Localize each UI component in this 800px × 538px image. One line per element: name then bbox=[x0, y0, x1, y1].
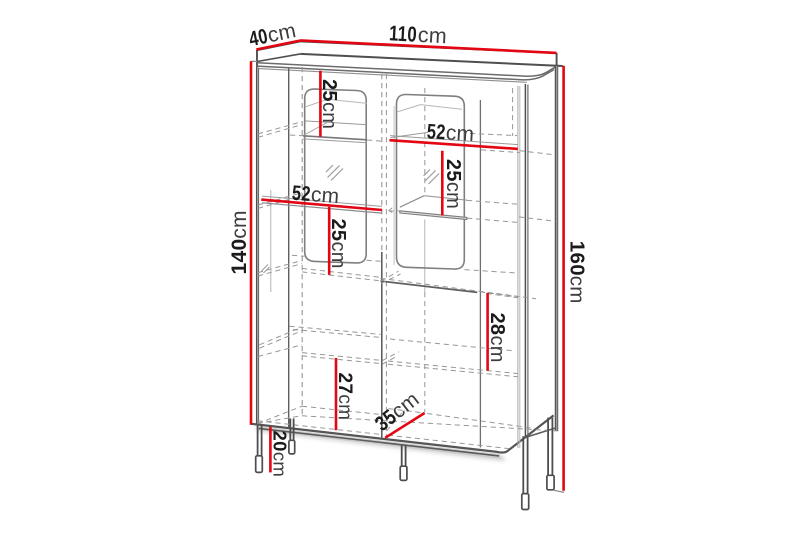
svg-text:25: 25 bbox=[442, 159, 464, 182]
svg-text:28: 28 bbox=[486, 313, 508, 336]
svg-text:cm: cm bbox=[327, 242, 349, 269]
svg-text:cm: cm bbox=[486, 336, 508, 363]
svg-text:27: 27 bbox=[334, 373, 355, 395]
svg-text:140: 140 bbox=[228, 239, 251, 275]
svg-text:cm: cm bbox=[442, 182, 464, 209]
svg-text:20: 20 bbox=[270, 431, 291, 452]
svg-text:cm: cm bbox=[417, 23, 447, 48]
svg-text:cm: cm bbox=[445, 121, 475, 146]
svg-text:25: 25 bbox=[318, 79, 340, 102]
svg-text:52: 52 bbox=[426, 119, 446, 144]
svg-text:25: 25 bbox=[327, 219, 349, 242]
svg-text:52: 52 bbox=[291, 181, 311, 206]
svg-text:cm: cm bbox=[318, 102, 340, 129]
svg-text:cm: cm bbox=[565, 276, 588, 304]
svg-text:110: 110 bbox=[389, 22, 418, 47]
svg-text:160: 160 bbox=[565, 241, 588, 276]
svg-text:cm: cm bbox=[270, 452, 291, 477]
svg-text:cm: cm bbox=[334, 394, 355, 420]
svg-text:cm: cm bbox=[310, 183, 340, 208]
svg-text:cm: cm bbox=[228, 210, 251, 238]
